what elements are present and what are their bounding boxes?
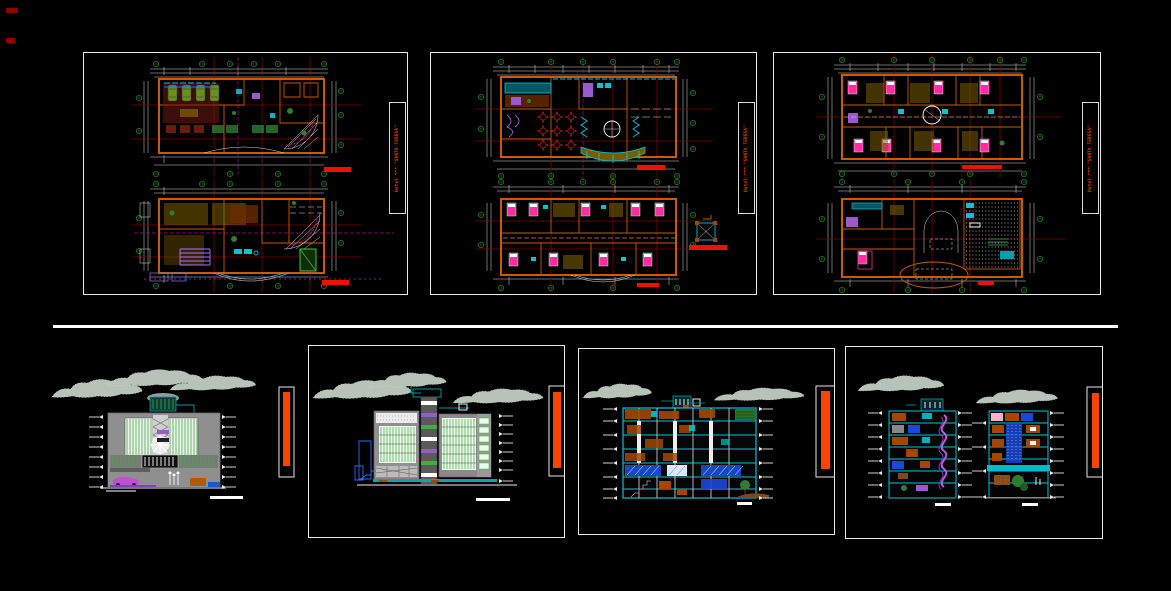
- scale-bar-red: [324, 167, 351, 172]
- detail-callout: [689, 215, 727, 250]
- sheet-sections-b: [845, 346, 1103, 539]
- floor-plan-drawing-3: [774, 53, 1100, 294]
- cross-section-spiral-stair: [868, 399, 972, 506]
- section-drawing-a: [579, 349, 834, 534]
- revision-cloud: [583, 384, 652, 398]
- level-markers: [499, 414, 513, 483]
- scale-bar-red: [322, 280, 349, 285]
- title-bar-vertical: [279, 387, 294, 477]
- sheet-front-elevation: [50, 345, 300, 540]
- scale-bar-white: [476, 498, 510, 501]
- title-bar-vertical: [816, 386, 834, 477]
- sheet-floor-plans-1: Hotel *** "SANTA TERESA": [83, 52, 408, 295]
- sheet-side-elevation: [308, 345, 565, 538]
- sheet-floor-plans-3: Hotel *** "SANTA TERESA": [773, 52, 1101, 295]
- floor-plan-drawing-2: [431, 53, 756, 294]
- cad-sheet-background: { "sheets": [ { "title": "Hotel *** \"SA…: [0, 0, 1171, 591]
- cross-section-b: [972, 411, 1064, 506]
- front-elevation-drawing: [50, 345, 300, 540]
- typical-bedroom-floor-plan: [816, 55, 1062, 177]
- plot-corner-mark: [6, 38, 15, 43]
- building-front-elevation: [100, 393, 226, 491]
- sheet-title-box: Hotel *** "SANTA TERESA": [738, 102, 755, 214]
- revision-cloud: [858, 376, 944, 391]
- scale-bar-red: [978, 281, 994, 285]
- ground-floor-plan: [132, 57, 362, 177]
- title-bar-vertical: [549, 386, 564, 476]
- scale-bar-white: [737, 502, 752, 505]
- floor-plan-drawing-1: [84, 53, 407, 294]
- bedroom-floor-plan: [475, 179, 727, 293]
- sheet-title: Hotel *** "SANTA TERESA": [744, 125, 749, 192]
- sheet-floor-plans-2: Hotel *** "SANTA TERESA": [430, 52, 757, 295]
- scale-bar-red: [637, 165, 665, 170]
- title-bar-vertical: [1087, 387, 1102, 477]
- roof-hatch-area: [964, 199, 1020, 269]
- sheet-title-box: Hotel *** "SANTA TERESA": [389, 102, 406, 214]
- side-elevation-drawing: [309, 346, 564, 537]
- sheet-title: Hotel *** "SANTA TERESA": [395, 125, 400, 192]
- second-floor-plan: [132, 179, 394, 293]
- plot-corner-mark: [6, 8, 18, 13]
- roof-terrace-plan: [816, 179, 1066, 293]
- sheet-section-a: [578, 348, 835, 535]
- scale-bar-white: [210, 496, 243, 499]
- restaurant-floor-plan: [475, 57, 713, 179]
- sheet-title: Hotel *** "SANTA TERESA": [1088, 125, 1093, 192]
- scale-bar-red: [962, 165, 1002, 169]
- scale-bar-red: [637, 283, 659, 287]
- sheet-title-box: Hotel *** "SANTA TERESA": [1082, 102, 1099, 214]
- section-drawing-b: [846, 347, 1102, 538]
- building-section: [623, 396, 769, 498]
- row-divider-line: [53, 325, 1118, 328]
